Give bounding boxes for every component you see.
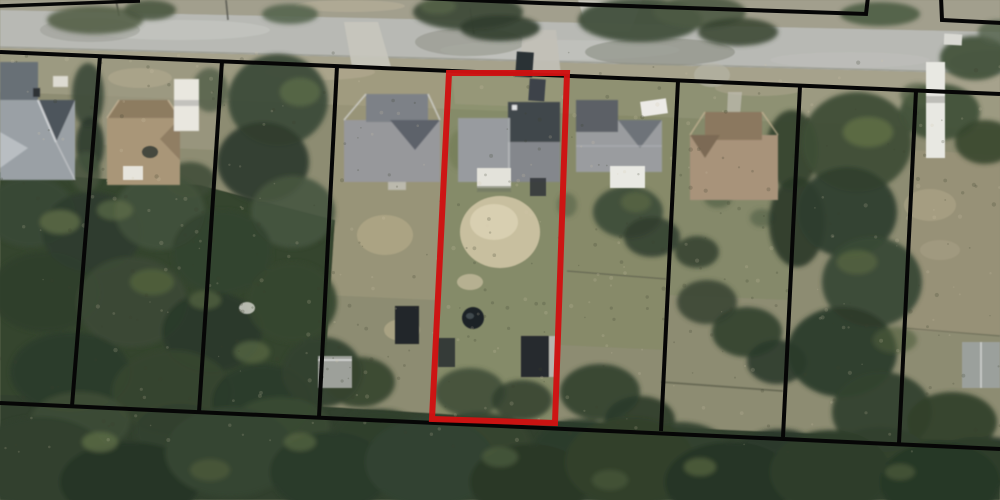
aerial-parcel-map-screenshot bbox=[0, 0, 1000, 500]
parcel-map-canvas[interactable] bbox=[0, 0, 1000, 500]
